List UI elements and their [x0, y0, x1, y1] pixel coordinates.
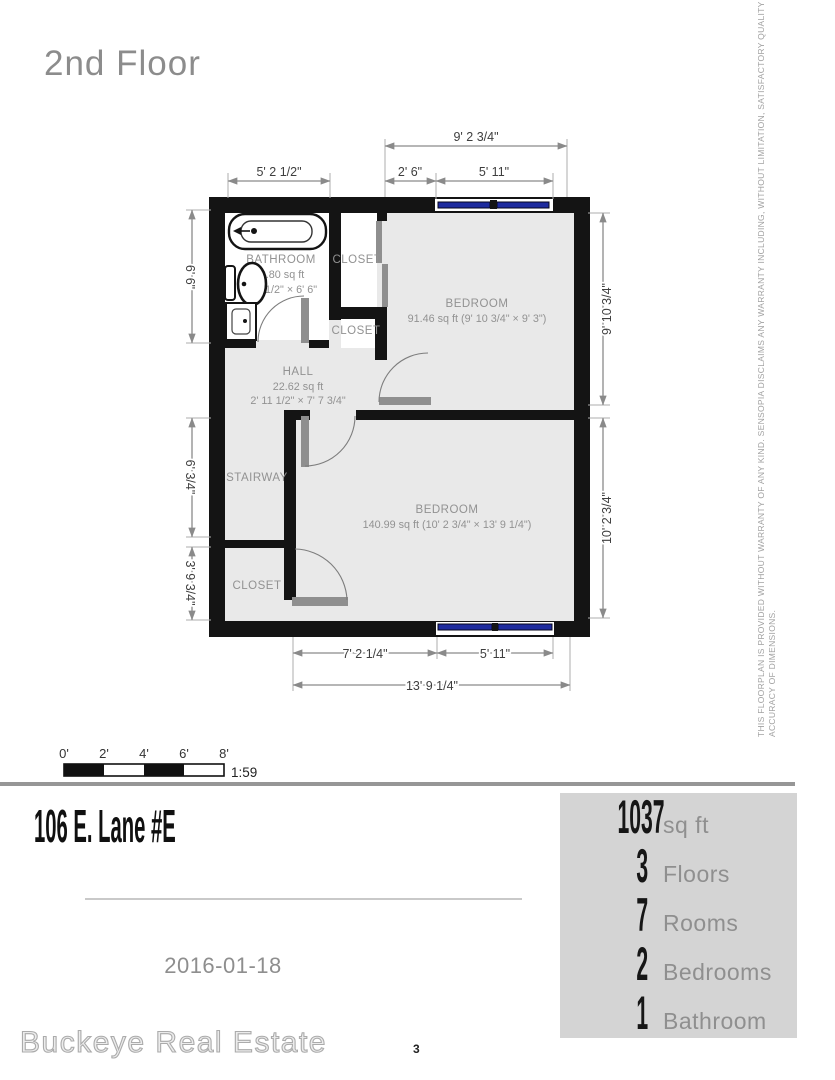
stat-label: sq ft [663, 812, 709, 839]
floorplan-page: 2nd Floor [0, 0, 835, 1080]
stat-label: Rooms [663, 910, 738, 937]
dim-top-bathroom: 5' 2 1/2" [256, 165, 301, 179]
toilet-icon [225, 263, 266, 305]
dim-top-bedroom: 9' 2 3/4" [453, 130, 498, 144]
stat-label: Bedrooms [663, 959, 772, 986]
bedroom-bottom-area: 140.99 sq ft (10' 2 3/4" × 13' 9 1/4") [363, 519, 532, 531]
closet-door-icon [292, 597, 348, 606]
dim-right-bedroom-top: 9' 10 3/4" [600, 283, 614, 335]
stat-row-sqft: 1037 sq ft [560, 793, 797, 842]
wall-closet-lower-top [209, 540, 296, 548]
bedroom-top-area: 91.46 sq ft (9' 10 3/4" × 9' 3") [408, 313, 547, 325]
address-title: 106 E. Lane #E [34, 799, 356, 853]
wall-bathroom-bottom [225, 340, 256, 348]
scale-tick-4: 4' [139, 746, 149, 761]
stat-value: 7 [560, 892, 648, 938]
date-label: 2016-01-18 [128, 953, 318, 979]
window-top-icon [435, 199, 553, 211]
closet-top-label: CLOSET [332, 254, 381, 266]
dim-bottom-total: 13' 9 1/4" [406, 679, 458, 693]
disclaimer-text: THIS FLOORPLAN IS PROVIDED WITHOUT WARRA… [756, 61, 778, 737]
closet-lower-label: CLOSET [232, 580, 281, 592]
stats-box: 1037 sq ft 3 Floors 7 Rooms 2 Bedrooms 1… [560, 793, 797, 1038]
wall-bedroom2-top [356, 410, 574, 420]
window-bottom-icon [436, 622, 554, 635]
wall-closet-lower-right [284, 548, 296, 600]
bedroom1-door-icon [379, 397, 431, 405]
dim-left-stairway: 6' 3/4" [183, 460, 197, 495]
stat-label: Bathroom [663, 1008, 767, 1035]
stat-row-bedrooms: 2 Bedrooms [560, 940, 797, 989]
brand-logo: Buckeye Real Estate [20, 1026, 327, 1060]
scale-tick-2: 2' [99, 746, 109, 761]
bedroom-bottom-label: BEDROOM [416, 504, 479, 516]
hall-dims: 2' 11 1/2" × 7' 7 3/4" [250, 395, 345, 407]
dim-bottom-window: 5' 11" [480, 647, 510, 661]
dim-bottom-left: 7' 2 1/4" [342, 647, 387, 661]
scale-tick-0: 0' [59, 746, 69, 761]
scale-ratio: 1:59 [231, 765, 257, 780]
bedroom2-door-icon [301, 416, 309, 467]
closet-mid-label: CLOSET [331, 325, 380, 337]
footer-rule [85, 898, 522, 900]
stat-value: 3 [560, 843, 648, 889]
stairway-label: STAIRWAY [226, 472, 288, 484]
dim-left-closet: 3' 9 3/4" [183, 560, 197, 605]
sliding-door-icon [382, 264, 388, 307]
scale-bar: 0' 2' 4' 6' 8' 1:59 [59, 746, 257, 780]
stat-value: 2 [560, 941, 648, 987]
hall-label: HALL [283, 366, 314, 378]
dim-left-bathroom: 6' 6" [183, 265, 197, 289]
scale-tick-6: 6' [179, 746, 189, 761]
page-number: 3 [413, 1042, 420, 1056]
footer-divider [0, 782, 795, 786]
dim-right-bedroom-bottom: 10' 2 3/4" [600, 492, 614, 544]
wall-bathroom-right [329, 213, 341, 320]
stat-row-bathrooms: 1 Bathroom [560, 989, 797, 1038]
wall-bathroom-bottom-stub [309, 340, 329, 348]
stat-value: 1 [560, 990, 648, 1036]
bathroom-door-icon [301, 298, 309, 343]
stat-label: Floors [663, 861, 730, 888]
wall-left [209, 197, 225, 637]
stat-value: 1037 [560, 794, 648, 840]
disclaimer-line-2: ACCURACY OF DIMENSIONS. [767, 61, 778, 737]
disclaimer-line-1: THIS FLOORPLAN IS PROVIDED WITHOUT WARRA… [756, 61, 767, 737]
scale-tick-8: 8' [219, 746, 229, 761]
dim-top-window: 5' 11" [479, 165, 509, 179]
wall-closet-top-stub [377, 213, 387, 221]
stat-row-floors: 3 Floors [560, 842, 797, 891]
wall-right [574, 197, 590, 637]
stat-row-rooms: 7 Rooms [560, 891, 797, 940]
hall-area: 22.62 sq ft [273, 381, 323, 393]
bedroom-top-label: BEDROOM [446, 298, 509, 310]
bathtub-icon [229, 214, 326, 249]
wall-closet-divider [329, 307, 387, 319]
dim-top-gap: 2' 6" [398, 165, 422, 179]
sink-icon [221, 303, 256, 340]
address-text: 106 E. Lane #E [34, 799, 176, 853]
